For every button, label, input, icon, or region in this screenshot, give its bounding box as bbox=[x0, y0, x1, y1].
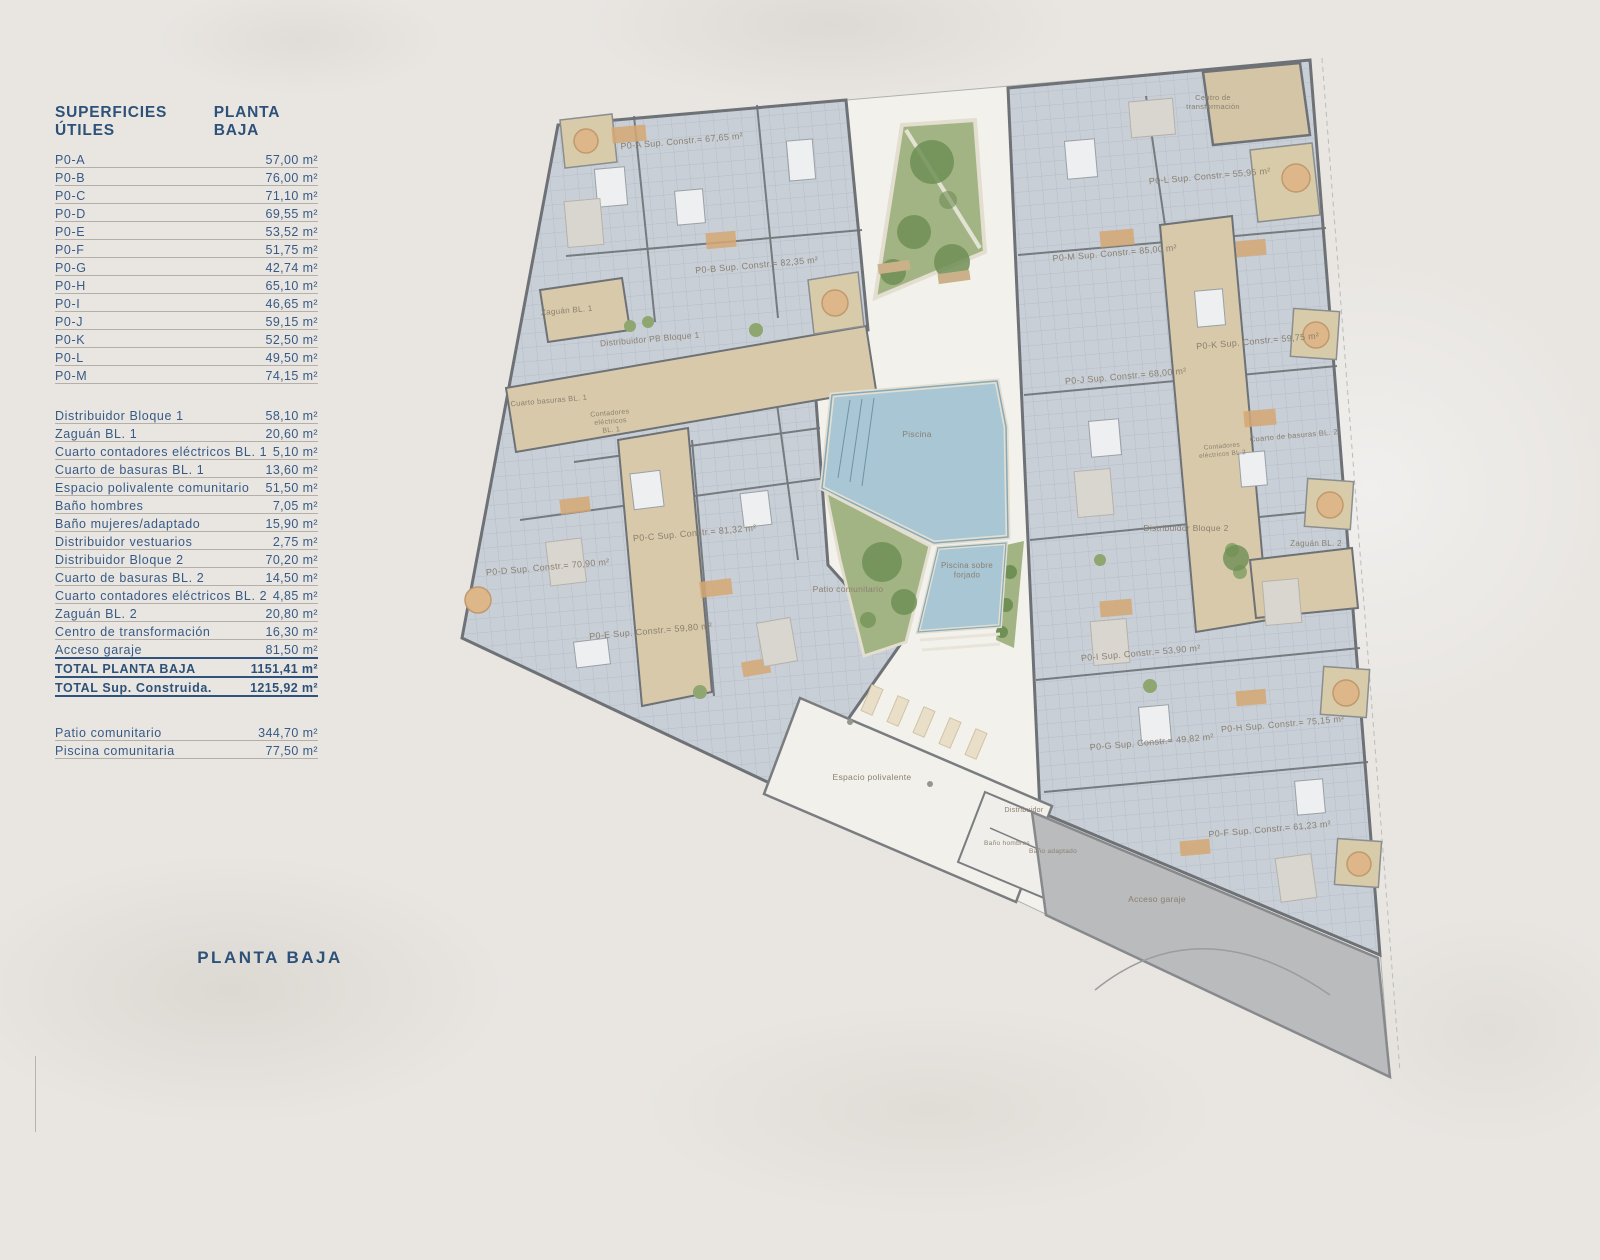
table-row: P0-D69,55 m² bbox=[55, 204, 318, 222]
row-value: 51,75 m² bbox=[265, 243, 318, 257]
row-label: P0-E bbox=[55, 225, 85, 239]
table-row: P0-K52,50 m² bbox=[55, 330, 318, 348]
table-row: P0-G42,74 m² bbox=[55, 258, 318, 276]
row-label: Acceso garaje bbox=[55, 643, 142, 657]
row-value: 52,50 m² bbox=[265, 333, 318, 347]
row-label: P0-J bbox=[55, 315, 83, 329]
table-row: Patio comunitario344,70 m² bbox=[55, 723, 318, 741]
table-row: Espacio polivalente comunitario51,50 m² bbox=[55, 478, 318, 496]
row-label: P0-M bbox=[55, 369, 87, 383]
table-row: Distribuidor Bloque 158,10 m² bbox=[55, 406, 318, 424]
table-row: P0-I46,65 m² bbox=[55, 294, 318, 312]
row-label: Baño mujeres/adaptado bbox=[55, 517, 200, 531]
table-row: P0-A57,00 m² bbox=[55, 150, 318, 168]
row-label: Espacio polivalente comunitario bbox=[55, 481, 249, 495]
plan-label: Patio comunitario bbox=[813, 584, 884, 594]
plan-label: Zaguán BL. 2 bbox=[1290, 539, 1342, 548]
row-value: 14,50 m² bbox=[265, 571, 318, 585]
row-value: 51,50 m² bbox=[265, 481, 318, 495]
table-row: P0-L49,50 m² bbox=[55, 348, 318, 366]
row-value: 1215,92 m² bbox=[250, 681, 318, 695]
table-row: Baño hombres7,05 m² bbox=[55, 496, 318, 514]
common-rows: Distribuidor Bloque 158,10 m²Zaguán BL. … bbox=[55, 406, 318, 697]
surface-table-header: SUPERFICIES ÚTILES PLANTA BAJA bbox=[55, 104, 318, 140]
surface-table-title: SUPERFICIES ÚTILES bbox=[55, 104, 214, 140]
outdoor-rows: Patio comunitario344,70 m²Piscina comuni… bbox=[55, 723, 318, 759]
row-value: 15,90 m² bbox=[265, 517, 318, 531]
plan-label: Acceso garaje bbox=[1128, 894, 1186, 904]
table-row: P0-B76,00 m² bbox=[55, 168, 318, 186]
row-label: TOTAL PLANTA BAJA bbox=[55, 662, 196, 676]
row-value: 74,15 m² bbox=[265, 369, 318, 383]
plan-footer-label: PLANTA BAJA bbox=[190, 948, 350, 968]
row-value: 1151,41 m² bbox=[251, 662, 318, 676]
row-label: P0-C bbox=[55, 189, 86, 203]
row-label: P0-D bbox=[55, 207, 86, 221]
table-row: Cuarto contadores eléctricos BL. 15,10 m… bbox=[55, 442, 318, 460]
row-label: Cuarto contadores eléctricos BL. 1 bbox=[55, 445, 267, 459]
table-row: P0-E53,52 m² bbox=[55, 222, 318, 240]
row-label: Distribuidor Bloque 1 bbox=[55, 409, 184, 423]
row-label: P0-H bbox=[55, 279, 86, 293]
row-value: 81,50 m² bbox=[265, 643, 318, 657]
table-row: Cuarto de basuras BL. 113,60 m² bbox=[55, 460, 318, 478]
table-row: P0-H65,10 m² bbox=[55, 276, 318, 294]
table-row: Distribuidor vestuarios2,75 m² bbox=[55, 532, 318, 550]
row-value: 59,15 m² bbox=[265, 315, 318, 329]
row-value: 58,10 m² bbox=[265, 409, 318, 423]
row-value: 77,50 m² bbox=[265, 744, 318, 758]
row-value: 65,10 m² bbox=[265, 279, 318, 293]
row-label: P0-K bbox=[55, 333, 85, 347]
row-label: P0-A bbox=[55, 153, 85, 167]
table-row: TOTAL PLANTA BAJA1151,41 m² bbox=[55, 659, 318, 678]
page-edge-mark bbox=[35, 1056, 36, 1132]
plan-label: Baño adaptado bbox=[1029, 848, 1077, 855]
table-row: Zaguán BL. 120,60 m² bbox=[55, 424, 318, 442]
row-value: 76,00 m² bbox=[265, 171, 318, 185]
table-row: Centro de transformación16,30 m² bbox=[55, 622, 318, 640]
page: { "legend": { "title": "SUPERFICIES ÚTIL… bbox=[0, 0, 1600, 1132]
row-value: 70,20 m² bbox=[265, 553, 318, 567]
row-value: 13,60 m² bbox=[265, 463, 318, 477]
plan-label: Distribuidor bbox=[1005, 807, 1044, 814]
table-row: Zaguán BL. 220,80 m² bbox=[55, 604, 318, 622]
table-row: P0-C71,10 m² bbox=[55, 186, 318, 204]
surface-table: SUPERFICIES ÚTILES PLANTA BAJA P0-A57,00… bbox=[55, 104, 318, 759]
plan-label: Piscina bbox=[902, 429, 932, 439]
row-value: 20,60 m² bbox=[265, 427, 318, 441]
table-row: Piscina comunitaria77,50 m² bbox=[55, 741, 318, 759]
surface-table-subtitle: PLANTA BAJA bbox=[214, 104, 318, 140]
row-value: 53,52 m² bbox=[265, 225, 318, 239]
unit-rows: P0-A57,00 m²P0-B76,00 m²P0-C71,10 m²P0-D… bbox=[55, 150, 318, 384]
row-label: P0-F bbox=[55, 243, 85, 257]
row-label: P0-B bbox=[55, 171, 85, 185]
table-row: Baño mujeres/adaptado15,90 m² bbox=[55, 514, 318, 532]
table-row: P0-F51,75 m² bbox=[55, 240, 318, 258]
row-label: Cuarto de basuras BL. 1 bbox=[55, 463, 204, 477]
row-label: Zaguán BL. 1 bbox=[55, 427, 137, 441]
table-row: Acceso garaje81,50 m² bbox=[55, 640, 318, 659]
row-label: TOTAL Sup. Construida. bbox=[55, 681, 212, 695]
row-label: Centro de transformación bbox=[55, 625, 210, 639]
row-label: P0-G bbox=[55, 261, 87, 275]
row-label: Cuarto contadores eléctricos BL. 2 bbox=[55, 589, 267, 603]
row-value: 46,65 m² bbox=[265, 297, 318, 311]
row-value: 57,00 m² bbox=[265, 153, 318, 167]
plan-label: Baño hombres bbox=[984, 840, 1030, 847]
row-label: Patio comunitario bbox=[55, 726, 162, 740]
row-value: 344,70 m² bbox=[258, 726, 318, 740]
table-row: TOTAL Sup. Construida.1215,92 m² bbox=[55, 678, 318, 697]
row-label: Baño hombres bbox=[55, 499, 144, 513]
row-value: 4,85 m² bbox=[273, 589, 318, 603]
row-value: 20,80 m² bbox=[265, 607, 318, 621]
row-label: Distribuidor Bloque 2 bbox=[55, 553, 184, 567]
row-label: P0-L bbox=[55, 351, 84, 365]
row-label: Distribuidor vestuarios bbox=[55, 535, 192, 549]
row-label: Piscina comunitaria bbox=[55, 744, 175, 758]
table-row: Distribuidor Bloque 270,20 m² bbox=[55, 550, 318, 568]
row-label: Cuarto de basuras BL. 2 bbox=[55, 571, 204, 585]
row-value: 5,10 m² bbox=[273, 445, 318, 459]
row-value: 7,05 m² bbox=[273, 499, 318, 513]
row-value: 2,75 m² bbox=[273, 535, 318, 549]
table-row: P0-M74,15 m² bbox=[55, 366, 318, 384]
plan-label: Espacio polivalente bbox=[833, 772, 912, 782]
table-row: P0-J59,15 m² bbox=[55, 312, 318, 330]
row-value: 69,55 m² bbox=[265, 207, 318, 221]
row-value: 42,74 m² bbox=[265, 261, 318, 275]
row-value: 71,10 m² bbox=[265, 189, 318, 203]
plan-label: Distribuidor Bloque 2 bbox=[1143, 523, 1228, 533]
table-row: Cuarto de basuras BL. 214,50 m² bbox=[55, 568, 318, 586]
table-row: Cuarto contadores eléctricos BL. 24,85 m… bbox=[55, 586, 318, 604]
row-value: 16,30 m² bbox=[265, 625, 318, 639]
row-label: Zaguán BL. 2 bbox=[55, 607, 137, 621]
row-value: 49,50 m² bbox=[265, 351, 318, 365]
row-label: P0-I bbox=[55, 297, 80, 311]
